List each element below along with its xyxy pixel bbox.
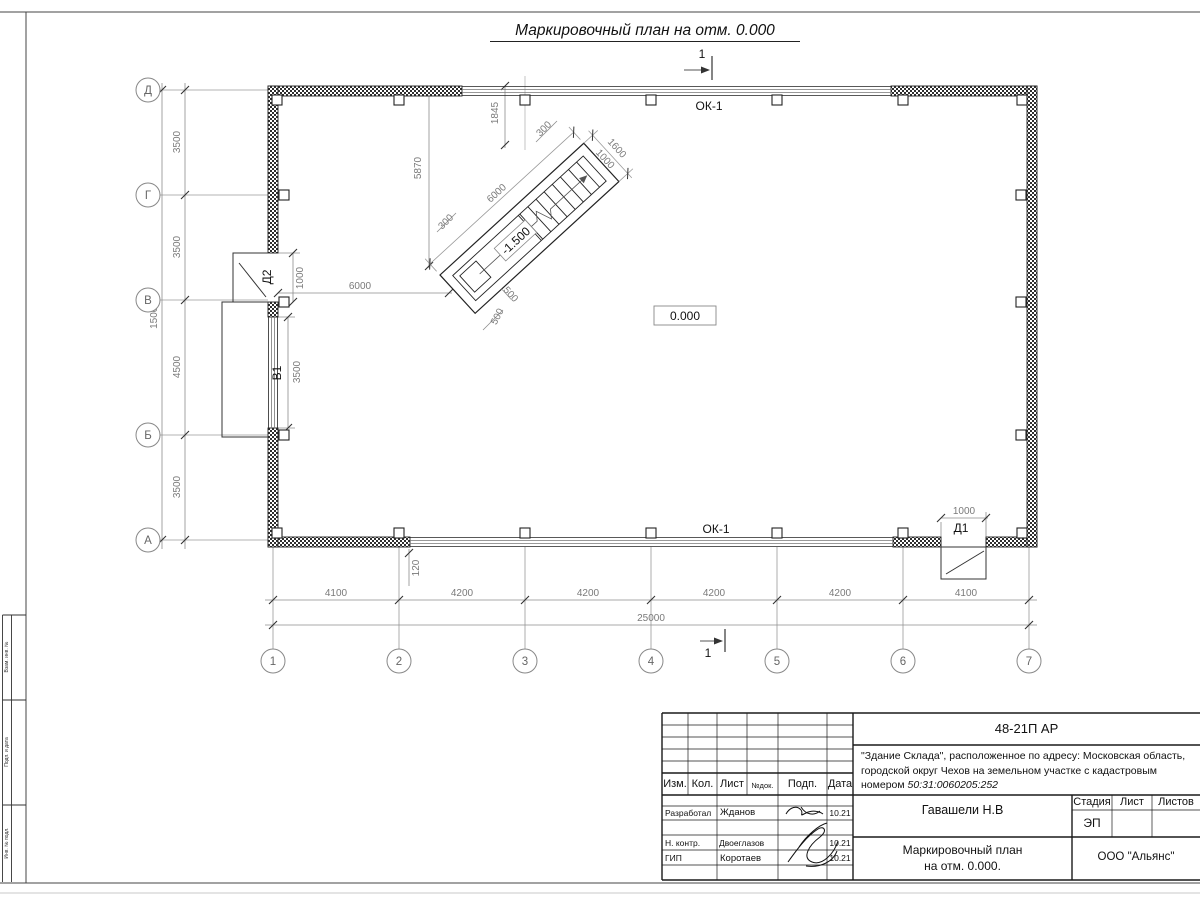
- side-stamp-box2-label: Подп. и дата: [4, 717, 10, 787]
- dim-d1-width: 1000: [953, 506, 976, 517]
- columns: [272, 95, 1027, 538]
- col-podp: Подп.: [778, 778, 827, 790]
- door-d1: [941, 547, 986, 579]
- side-stamp-box1-label: Взам. инв. №: [4, 622, 10, 692]
- axis-col-6: 6: [900, 656, 906, 668]
- label-door1: Д1: [954, 521, 969, 535]
- row-role-3: ГИП: [665, 853, 716, 863]
- axis-col-5: 5: [774, 656, 780, 668]
- dim-stair-length: 6000: [485, 182, 509, 205]
- dim-300-top: 300: [534, 119, 554, 139]
- label-window-bottom: ОК-1: [703, 522, 730, 536]
- section-number-top: 1: [699, 47, 706, 61]
- drawing-title-line1: Маркировочный план: [853, 843, 1072, 857]
- dim-row-3: 4500: [172, 355, 183, 378]
- col-data: Дата: [827, 778, 853, 790]
- col-kol: Кол.: [688, 778, 717, 790]
- col-list: Лист: [717, 778, 747, 790]
- side-stamp-box3-label: Инв. № подл.: [4, 808, 10, 878]
- dim-500b: 500: [489, 306, 507, 326]
- dim-wall-to-stair: 6000: [349, 281, 372, 292]
- label-gate1: В1: [270, 365, 284, 380]
- row-role-2: Н. контр.: [665, 838, 716, 848]
- row-name-1: Жданов: [720, 807, 776, 818]
- dim-row-1: 3500: [172, 130, 183, 153]
- dim-col-5: 4200: [829, 588, 852, 599]
- label-window-top: ОК-1: [696, 99, 723, 113]
- dim-col-3: 4200: [577, 588, 600, 599]
- window-bands: [269, 87, 987, 548]
- row-name-3: Коротаев: [720, 853, 776, 864]
- author-name: Гавашели Н.В: [853, 803, 1072, 817]
- desc-line2: городской округ Чехов на земельном участ…: [861, 765, 1157, 777]
- col-izm: Изм.: [662, 778, 688, 790]
- drawing-sheet: { "sheet": { "title": "Маркировочный пла…: [0, 0, 1200, 900]
- label-door2: Д2: [260, 269, 274, 284]
- row-date-3: 10.21: [828, 853, 852, 863]
- axis-row-v: В: [144, 295, 152, 307]
- axis-row-d: Д: [144, 85, 152, 97]
- section-number-bottom: 1: [705, 646, 712, 660]
- page-title: Маркировочный план на отм. 0.000: [490, 22, 800, 42]
- drawing-title-line2: на отм. 0.000.: [853, 859, 1072, 873]
- stage-label: Стадия: [1072, 796, 1112, 808]
- axis-row-a: А: [144, 535, 152, 547]
- level-mark-value: 0.000: [670, 309, 700, 323]
- dim-1845: 1845: [490, 101, 501, 124]
- axis-col-1: 1: [270, 656, 276, 668]
- axis-row-b: Б: [144, 430, 152, 442]
- level-mark: 0.000: [654, 306, 716, 325]
- company-name: ООО "Альянс": [1072, 851, 1200, 863]
- axis-col-4: 4: [648, 656, 655, 668]
- axis-col-3: 3: [522, 656, 528, 668]
- col-ndoc: №док.: [747, 781, 778, 790]
- gate-b1-dock: [222, 302, 268, 437]
- row-role-1: Разработал: [665, 808, 716, 818]
- doc-code: 48-21П АР: [853, 721, 1200, 736]
- desc-line1: "Здание Склада", расположенное по адресу…: [861, 750, 1185, 762]
- row-name-2: Двоеглазов: [719, 838, 777, 848]
- desc-line3-prefix: номером: [861, 779, 908, 791]
- dim-col-1: 4100: [325, 588, 348, 599]
- section-mark-top: 1: [684, 47, 712, 80]
- dim-d2-width: 1000: [295, 266, 306, 289]
- section-mark-bottom: 1: [700, 629, 725, 660]
- dim-5870: 5870: [413, 156, 424, 179]
- axis-row-g: Г: [145, 190, 152, 202]
- dim-row-4: 3500: [172, 475, 183, 498]
- axis-col-7: 7: [1026, 656, 1032, 668]
- dim-col-total: 25000: [637, 613, 665, 624]
- dim-col-2: 4200: [451, 588, 474, 599]
- dim-row-2: 3500: [172, 235, 183, 258]
- dim-col-4: 4200: [703, 588, 726, 599]
- sheet-label: Лист: [1112, 796, 1152, 808]
- sheets-label: Листов: [1152, 796, 1200, 808]
- cadastral-number: 50:31:0060205:252: [908, 779, 999, 791]
- stage-value: ЭП: [1072, 816, 1112, 830]
- axis-col-2: 2: [396, 656, 402, 668]
- dim-col-6: 4100: [955, 588, 978, 599]
- dim-b1-width: 3500: [292, 360, 303, 383]
- walls: [268, 86, 1037, 547]
- dim-wall-offset: 120: [411, 559, 422, 576]
- project-description: "Здание Склада", расположенное по адресу…: [861, 749, 1199, 793]
- row-date-1: 10.21: [828, 808, 852, 818]
- row-date-2: 10.21: [828, 838, 852, 848]
